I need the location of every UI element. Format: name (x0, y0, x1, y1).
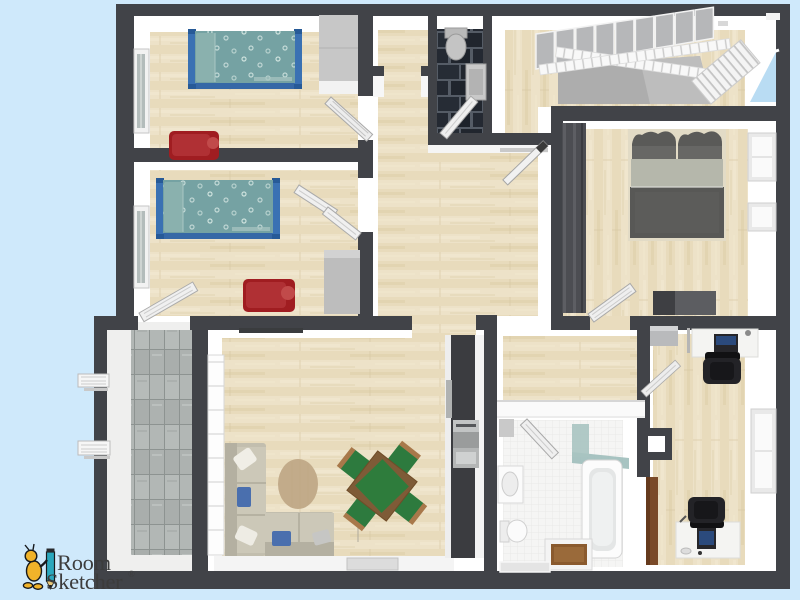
svg-text:®: ® (128, 569, 135, 579)
svg-text:Sketcher: Sketcher (46, 569, 123, 594)
